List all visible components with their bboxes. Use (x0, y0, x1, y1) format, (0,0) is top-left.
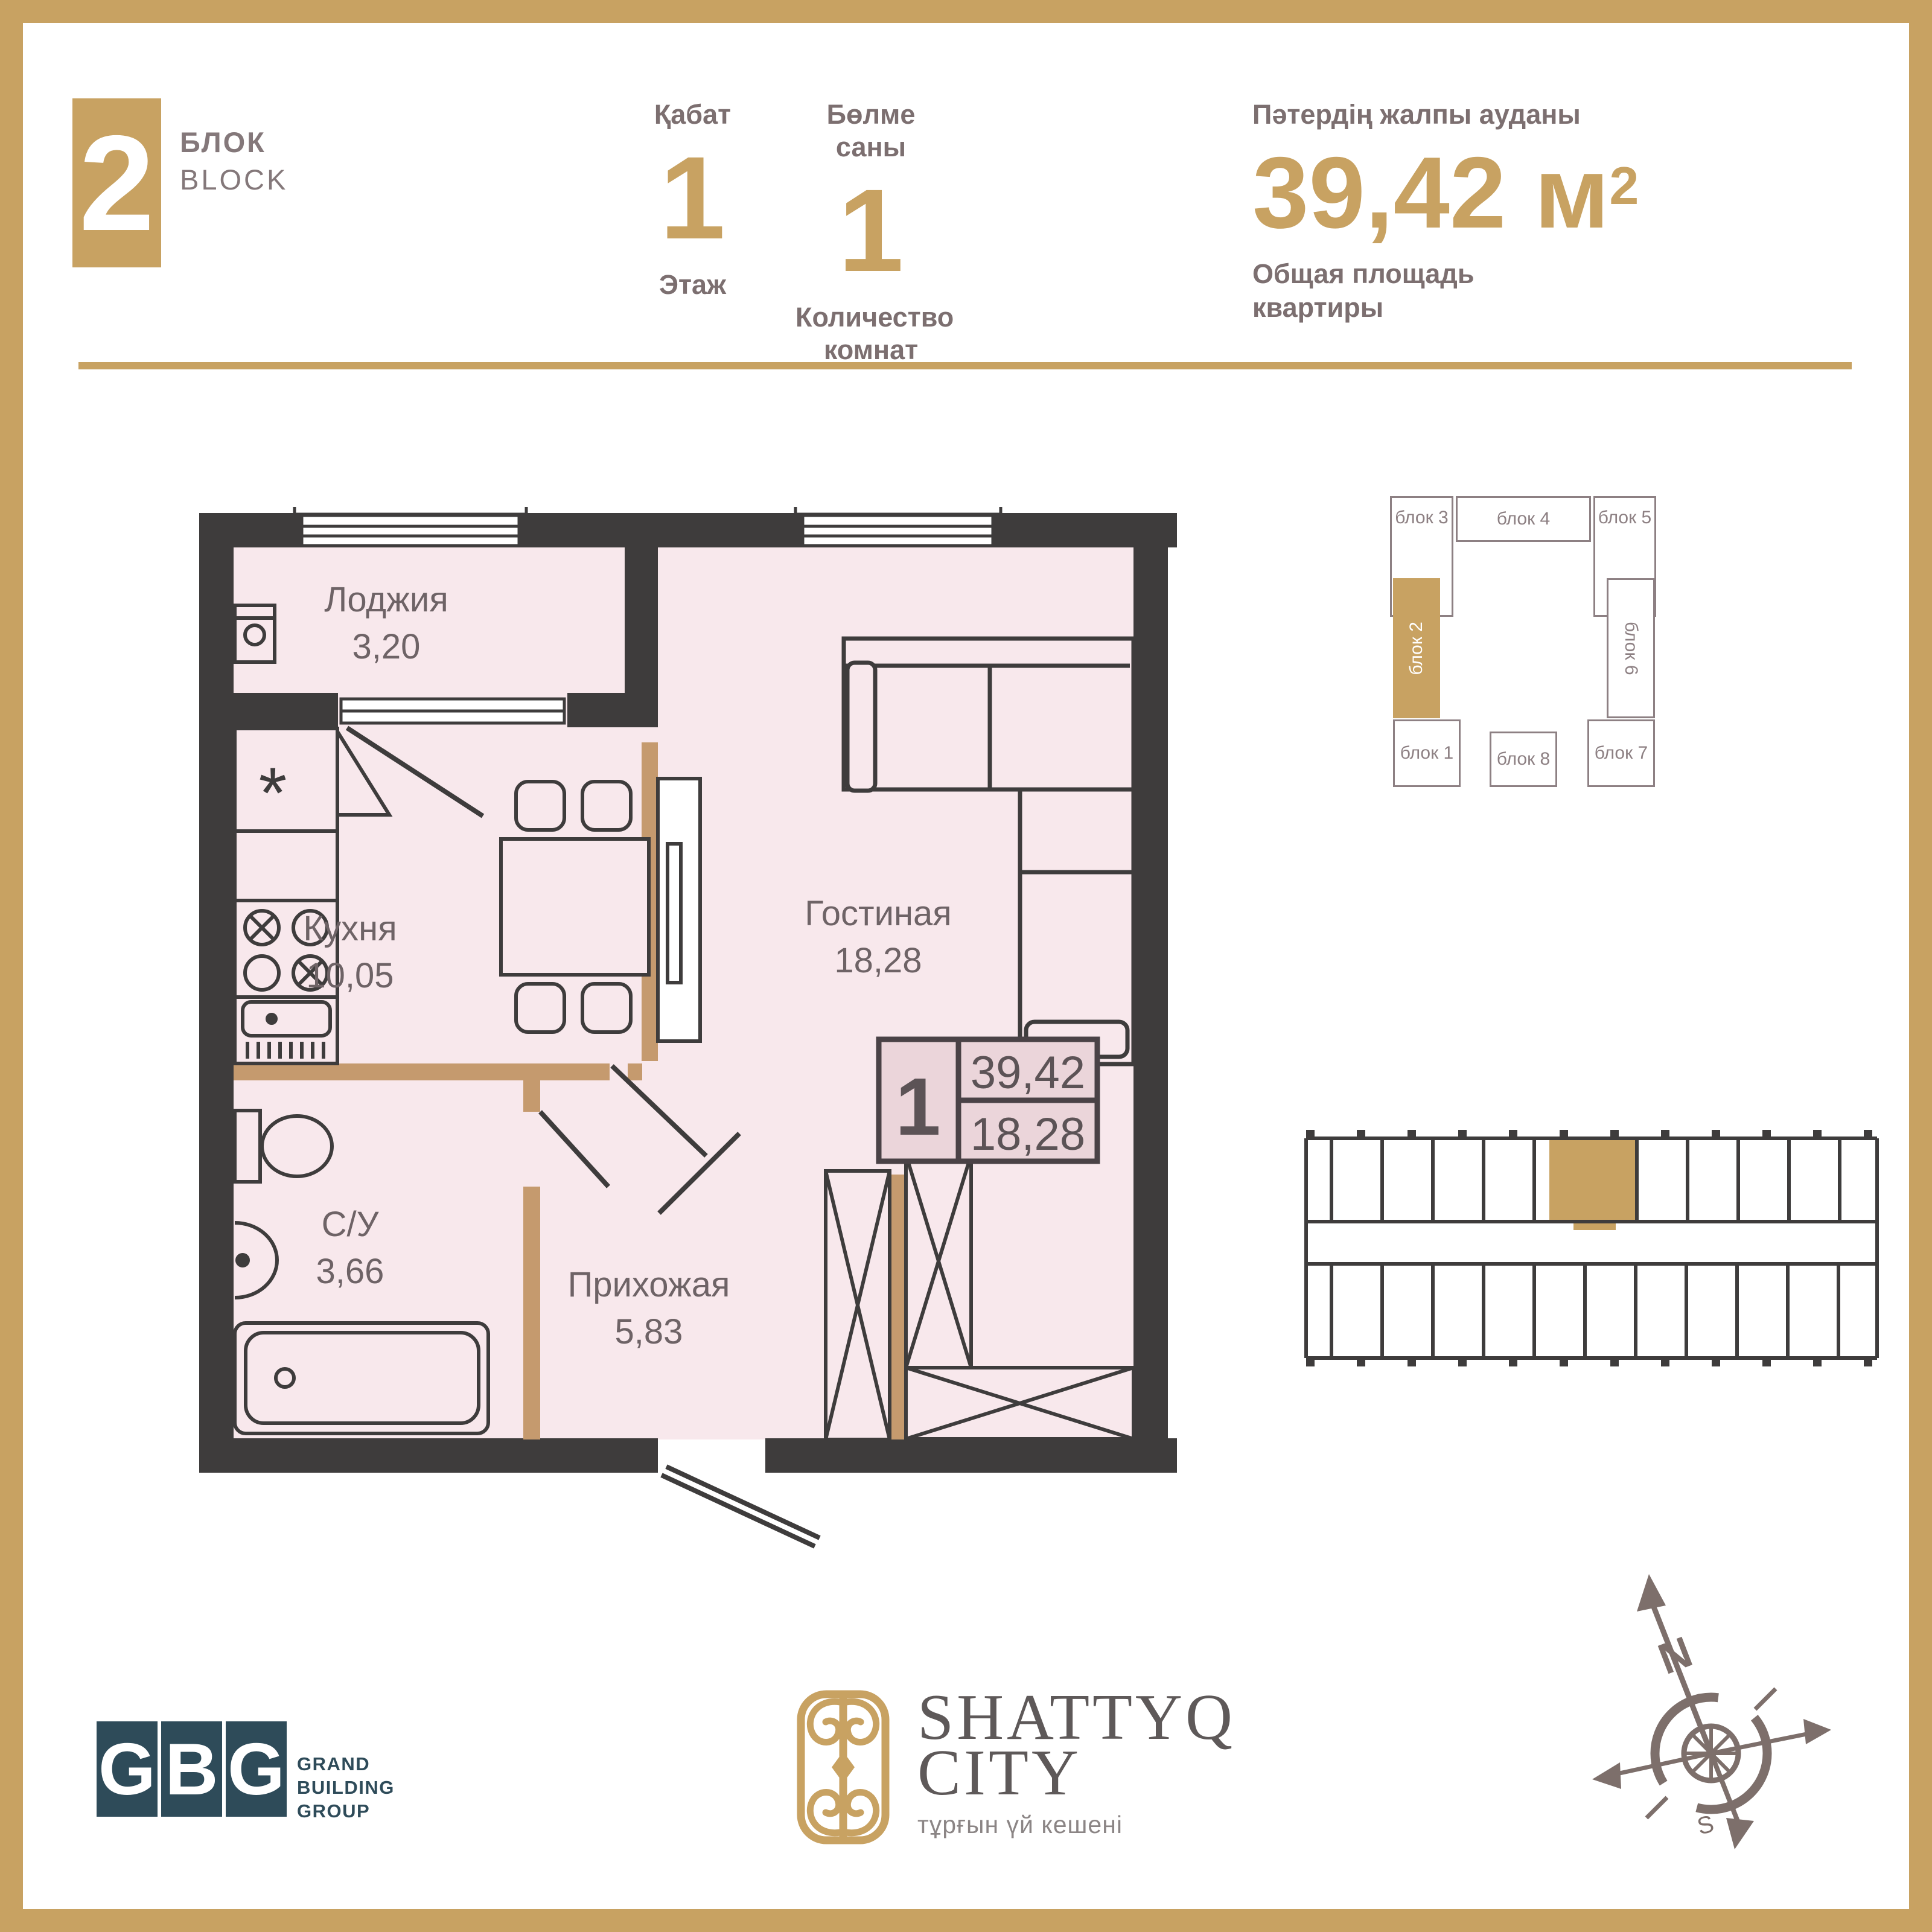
compass-south-label: S (1695, 1811, 1717, 1840)
shattyq-subtitle: тұрғын үй кешені (917, 1811, 1235, 1839)
gbg-name: GRAND BUILDING GROUP (297, 1752, 395, 1823)
scheme-block-2-highlighted: блок 2 (1393, 578, 1440, 718)
block-label: БЛОК BLOCK (180, 124, 288, 199)
flat-plan-sheet: 2 БЛОК BLOCK Қабат 1 Этаж Бөлме саны 1 К… (0, 0, 1932, 1932)
block-label-en: BLOCK (180, 161, 288, 199)
floor-label-kk: Қабат (622, 98, 764, 131)
stamp-rooms: 1 (895, 1061, 940, 1152)
kitchen-counter (235, 831, 337, 901)
block-number: 2 (79, 105, 155, 261)
gbg-letter-1: G (97, 1721, 158, 1817)
room-label-living: Гостиная 18,28 (733, 890, 1023, 984)
window-loggia (295, 507, 526, 546)
area-label-ru: Общая площадь квартиры (1252, 257, 1639, 325)
scheme-block-6: блок 6 (1607, 578, 1655, 718)
compass-north-label: N (1652, 1628, 1698, 1684)
key-plan-highlighted-unit (1549, 1138, 1637, 1222)
rooms-label-ru: Количество комнат (795, 301, 946, 366)
room-label-kitchen: Кухня 10,05 (205, 905, 495, 999)
rooms-value: 1 (795, 173, 946, 288)
shattyq-ornament-icon (791, 1687, 899, 1850)
scheme-block-8: блок 8 (1490, 732, 1557, 787)
gbg-letter-2: B (161, 1721, 222, 1817)
kitchen-sink (235, 997, 337, 1063)
room-label-bathroom: С/У 3,66 (260, 1201, 441, 1295)
room-label-loggia: Лоджия 3,20 (241, 576, 531, 671)
tv-unit (658, 779, 700, 1041)
shattyq-title-2: CITY (917, 1745, 1235, 1801)
shattyq-logo-text: SHATTYQ CITY тұрғын үй кешені (917, 1690, 1235, 1839)
floor-label-ru: Этаж (622, 269, 764, 301)
area-column: Пәтердің жалпы ауданы 39,42 м2 Общая пло… (1252, 98, 1639, 325)
gbg-letter-3: G (226, 1721, 287, 1817)
floor-value: 1 (622, 141, 764, 255)
header-separator-line (78, 362, 1852, 369)
window-living (795, 507, 1001, 546)
bathtub (235, 1323, 488, 1433)
floor-column: Қабат 1 Этаж (622, 98, 764, 301)
scheme-block-4: блок 4 (1456, 496, 1591, 542)
stamp-total-area: 39,42 (971, 1047, 1085, 1098)
block-label-kk: БЛОК (180, 124, 288, 161)
area-label-kk: Пәтердің жалпы ауданы (1252, 98, 1639, 131)
block-number-badge: 2 (72, 98, 161, 267)
room-label-hall: Прихожая 5,83 (504, 1261, 794, 1356)
entrance-door-leaf (662, 1475, 815, 1546)
compass-rose: N S (1581, 1551, 1841, 1877)
balcony-door-window (341, 699, 564, 723)
rooms-label-kk: Бөлме саны (795, 98, 946, 164)
stamp-living-area: 18,28 (971, 1109, 1085, 1160)
rooms-column: Бөлме саны 1 Количество комнат (795, 98, 946, 366)
toilet (235, 1111, 332, 1182)
scheme-block-1: блок 1 (1393, 719, 1461, 787)
apartment-stamp: 1 39,42 18,28 (879, 1039, 1097, 1161)
floor-key-plan (1299, 1130, 1884, 1366)
gbg-logo: G B G (97, 1721, 287, 1817)
scheme-block-7: блок 7 (1587, 719, 1655, 787)
fridge-symbol: * (259, 753, 287, 834)
area-value: 39,42 м2 (1252, 137, 1639, 249)
